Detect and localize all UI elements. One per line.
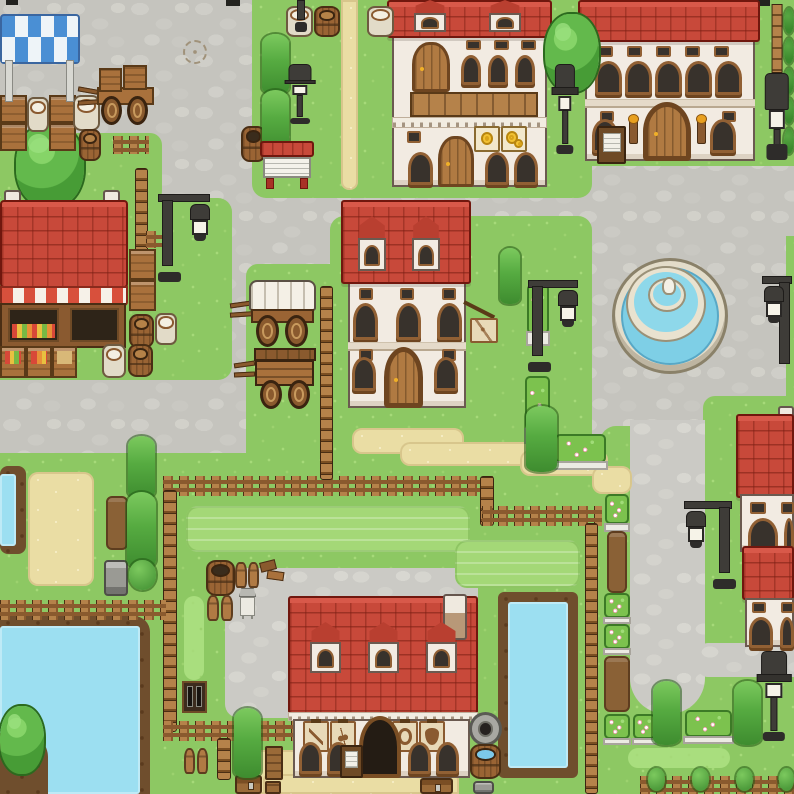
tall-street-lamp-part [772,4,783,73]
flower-planter [603,593,631,624]
arched-window [408,152,433,185]
hanging-street-lamp-part [162,200,173,266]
bucket [27,97,49,132]
small-window [656,46,671,57]
wood-pile [259,558,287,585]
storage-cabinet-part [187,686,193,706]
lantern-part [690,542,702,548]
arched-window [396,303,421,340]
flowers [685,710,732,737]
street-lamp-part [290,118,310,124]
flower-planter [683,710,734,744]
grain-sacks [235,560,259,589]
coin-icon [514,139,523,148]
coin-icon [481,132,493,145]
lamp-pole-part [295,22,307,32]
tilled-field [186,506,470,552]
dormer-window [412,0,448,32]
produce [57,351,72,364]
small-window [781,602,794,613]
wooden-chest[interactable] [420,778,453,794]
dormer-window-part [366,622,401,644]
sand-path [28,472,94,586]
dormer-window-part [410,216,442,240]
tilled-field [455,540,580,588]
bush [736,768,753,791]
lantern-part [768,317,780,323]
bucket-part [30,101,45,115]
flowers [555,434,606,463]
hand-cart-part [78,87,98,95]
wooden-fence-vertical [585,523,598,794]
barrel [206,560,235,596]
barrel-part [211,564,230,577]
hanging-street-lamp-part [719,507,730,573]
lamp-glow [765,683,782,698]
tall-street-lamp [760,4,794,160]
crate-stack [129,249,156,311]
blue-awning-stall-part [5,60,13,102]
street-lamp-part [763,732,785,741]
barrel-part [83,133,97,144]
grass-trail [184,596,204,680]
lantern-part [190,204,210,220]
wooden-door[interactable] [438,136,474,187]
bush [129,560,156,590]
produce-crate [26,346,52,378]
hanging-street-lamp [762,274,794,368]
barrel [314,6,340,37]
bucket-part [158,316,173,328]
flowers [604,593,630,618]
arched-window [749,617,773,648]
crate-stack-part [129,280,156,311]
wall-torch [697,119,706,144]
hand-cart-part [78,99,98,105]
lamp-glow [192,220,208,235]
tall-street-lamp-part [765,73,789,110]
crate-stack [0,95,27,151]
lantern-part [558,290,578,306]
paper [263,157,311,178]
lamp-glow [688,527,704,542]
village-notice-board-part [266,178,274,189]
lantern [684,511,708,555]
hanging-street-lamp-part [158,272,181,282]
cypress-tree [234,708,261,778]
small-window [685,46,700,57]
wooden-bench [265,781,281,794]
street-lamp-part [555,64,575,89]
crate-stack-part [129,249,156,280]
bucket [155,313,177,345]
grain-sacks-part [221,595,234,621]
grain-sacks [183,746,209,775]
fountain-spout [662,277,676,295]
storage-cabinet-part [196,686,202,706]
small-window [359,288,373,300]
hanging-street-lamp-part [528,362,551,372]
water-trough [498,592,578,778]
lantern [556,290,580,334]
wooden-fence [0,600,166,620]
market-counter [0,303,126,348]
metal-can [473,781,494,794]
grain-sacks-part [197,748,209,774]
street-lamp-part [285,80,316,85]
grain-sacks [206,593,234,622]
small-window [781,502,794,514]
wheel-icon [256,315,279,347]
open-wagon [234,348,316,412]
village-map: Pixel art village map [0,0,794,794]
bush [692,768,709,791]
market-counter-part [8,308,59,342]
sand-path [592,466,632,494]
arched-window [352,357,376,391]
hanging-sign[interactable] [462,296,500,344]
cypress-tree [653,681,680,745]
garden-bed [604,656,630,712]
wooden-door[interactable] [384,347,423,408]
bush [648,768,665,791]
dormer-window-part [356,216,388,240]
small-window [598,46,613,57]
arched-window [353,303,378,340]
lamp-glow [560,306,576,321]
hanging-street-lamp-part [713,579,736,589]
arched-window [485,152,509,185]
open-wagon-part [234,372,255,378]
wooden-door[interactable] [643,102,691,161]
notice-board[interactable] [340,745,363,778]
garden-bed [607,531,627,593]
arched-window [514,152,538,185]
barrel-part [134,318,150,330]
wheel-icon [260,380,282,409]
flowers [604,714,630,739]
arched-window [515,55,535,85]
wooden-bench [265,746,283,780]
tall-street-lamp-part [766,144,787,160]
dormer-window-part [433,649,450,669]
arched-window [436,742,459,774]
dormer-window [356,216,388,271]
small-window [750,502,766,514]
dormer-window-part [375,649,392,669]
produce-crate [0,346,26,378]
dormer-window [410,216,442,271]
grass-trail [628,748,730,768]
small-window [521,40,536,50]
small-window [407,131,421,143]
lamp-glow [766,302,782,317]
barrel-part [319,10,336,21]
arched-window [710,119,736,153]
dormer-window-part [424,622,459,644]
arched-window [780,617,794,648]
sand-path [341,0,358,190]
storage-cabinet[interactable] [182,681,207,713]
wheel-icon [285,315,308,347]
lantern-part [194,235,206,241]
street-lamp [756,651,792,741]
hanging-street-lamp [528,278,580,374]
arched-window [488,55,508,85]
flower-planter [603,624,631,655]
wooden-fence-vertical [320,286,333,480]
barrel [79,129,101,161]
village-notice-board-part [260,141,314,157]
upper-door[interactable] [412,42,450,92]
canvas-cover [249,280,316,311]
lantern [188,204,212,248]
bucket [367,6,394,37]
flower-planter-part [553,461,608,470]
lamp-pole-part [297,0,305,20]
dormer-window [366,622,401,673]
produce [5,351,21,364]
tree [0,706,44,774]
bucket [102,344,126,378]
well[interactable] [469,712,502,746]
paper [345,751,359,768]
water-trough-part [508,602,568,768]
hanging-street-lamp [158,192,212,284]
lantern-part [764,286,784,302]
red-roof [736,414,794,498]
sign-icon [470,318,498,343]
red-roof [578,0,760,42]
street-lamp-part [562,110,568,144]
feeder-part [240,597,255,616]
flowers [604,624,630,649]
fountain [612,258,728,374]
flowers [605,494,629,524]
arched-window [461,55,481,85]
pond [0,466,26,554]
garden-bed [106,496,128,550]
cypress-tree [500,248,520,304]
crate-stack-part [0,123,27,151]
chimney-stub [226,0,240,6]
barrel [128,344,153,377]
wooden-fence [482,506,602,526]
small-window [752,602,766,613]
feeder [236,588,259,619]
street-lamp-part [770,697,777,731]
small-window [466,40,481,50]
drain-cover [183,40,207,64]
flower-planter [604,494,630,532]
bucket-part [371,9,390,21]
crate-stack-part [49,123,76,151]
covered-wagon-part [230,311,252,317]
lamp-glow [769,110,785,129]
sign-icon [425,728,439,745]
barrel [470,744,501,779]
flower-planter-part [603,617,631,624]
blue-awning-stall-part [66,60,74,102]
barrel-part [475,748,496,760]
street-lamp-part [552,87,579,94]
hanging-street-lamp-part [532,286,543,356]
flower-planter [603,714,631,745]
street-lamp-part [297,95,303,118]
red-roof [742,546,794,600]
cypress-tree [526,406,557,472]
dormer-window [308,622,343,673]
cypress-tree [128,436,155,498]
wooden-fence [113,136,149,154]
flower-planter-part [603,648,631,655]
grain-sacks-part [207,595,220,621]
village-notice-board[interactable] [260,141,314,189]
dormer-window-part [317,649,334,669]
flower-planter-part [683,736,734,744]
hand-cart [78,64,156,128]
grain-sacks-part [235,562,246,588]
hand-cart-part [99,68,122,92]
wooden-fence-vertical [217,738,231,780]
street-lamp-part [761,651,787,676]
bucket-part [106,348,123,361]
street-lamp [551,64,579,154]
arched-window [434,357,458,391]
dormer-window-part [421,17,438,30]
small-window [494,40,509,50]
barrel [129,314,154,348]
feeder-part [251,615,253,619]
dormer-window-part [308,622,343,644]
open-wagon-part [234,361,255,369]
grain-sacks-part [184,748,196,774]
small-window [442,288,456,300]
metal-can [104,560,128,596]
wheel-icon [288,380,310,409]
dormer-window-part [496,17,513,30]
market-counter-part [70,308,119,342]
barrel-part [133,348,149,360]
dormer-window [424,622,459,673]
produce [31,351,47,364]
bush [779,768,794,791]
small-window [714,46,729,57]
hand-cart-part [123,65,146,89]
street-lamp-part [757,674,792,681]
arched-window [685,61,712,95]
lantern [762,286,786,330]
balcony-planks [410,92,538,117]
hanging-street-lamp [684,499,734,591]
pond-part [0,474,16,546]
arched-window [437,303,462,340]
flower-planter-part [603,738,631,745]
dormer-window-part [364,245,379,266]
lamp-glow [558,96,571,111]
feeder-part [242,615,244,619]
lantern-part [562,321,574,327]
blue-awning-stall [0,14,80,64]
street-lamp-part [556,145,573,154]
produce [12,324,55,338]
hanging-sign-part [463,300,495,319]
red-roof [0,200,128,288]
small-window [400,288,414,300]
flower-planter [553,434,608,470]
lamp-pole [295,0,307,32]
street-lamp [284,64,316,124]
wood-pile-part [267,570,285,581]
wheel-icon [101,96,122,125]
arched-window [595,61,622,95]
dormer-window [487,0,523,32]
village-notice-board-part [300,178,308,189]
cypress-tree [127,492,156,568]
street-lamp-part [288,64,311,81]
entrance[interactable] [359,716,401,778]
gold-coin-sign[interactable] [501,126,527,152]
arched-window [655,61,682,95]
small-window [627,46,642,57]
gold-coin-sign[interactable] [474,126,500,152]
crate-stack [49,95,76,151]
produce-crate [52,346,77,378]
notice-board[interactable] [597,126,626,164]
arched-window [299,742,322,774]
paper [603,133,621,153]
grain-sacks-part [248,562,259,588]
dormer-window-part [418,245,433,266]
covered-wagon [230,280,316,350]
arched-window [408,742,431,774]
arched-window [715,61,742,95]
arched-window [625,61,652,95]
wheel-icon [127,96,148,125]
lantern-part [686,511,706,527]
wall-torch [629,119,638,144]
chimney-stub [6,0,18,5]
